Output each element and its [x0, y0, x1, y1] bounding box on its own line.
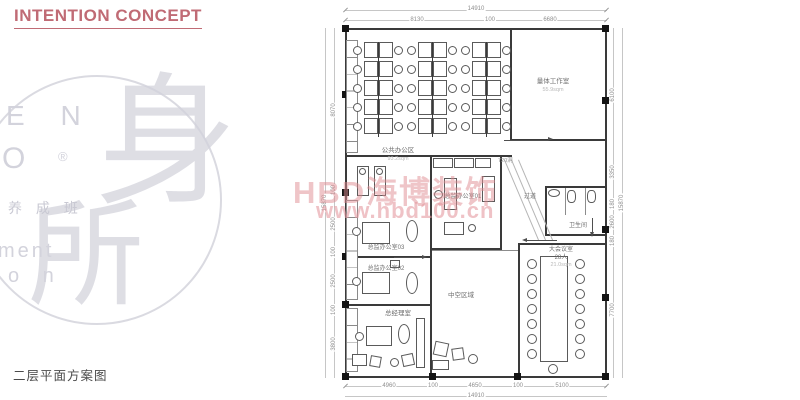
dimension-text: 100 — [427, 383, 439, 389]
chair-symbol — [527, 319, 537, 329]
chair-symbol — [448, 103, 457, 112]
opening-annotation: 720洞 — [498, 156, 513, 164]
chair-symbol — [353, 103, 362, 112]
dimension-text: 8070 — [331, 102, 337, 117]
desk-symbol — [418, 80, 432, 96]
chair-symbol — [407, 103, 416, 112]
chair-symbol — [527, 304, 537, 314]
chair-symbol — [527, 274, 537, 284]
logo-text-fragment: ment — [0, 240, 54, 263]
desk-symbol — [418, 118, 432, 134]
chair-symbol — [448, 65, 457, 74]
desk-symbol — [418, 42, 432, 58]
room-label-void: 中空区域 — [448, 292, 474, 300]
dimension-text: 14910 — [467, 6, 486, 12]
page-title: INTENTION CONCEPT — [14, 6, 202, 29]
room-area-text: 21.0sqm — [550, 262, 571, 268]
chair-symbol — [575, 289, 585, 299]
chair-symbol — [502, 122, 511, 131]
chair-symbol — [575, 259, 585, 269]
room-label-gm-office: 总经理室 — [385, 310, 411, 318]
dimension-text: 4650 — [467, 383, 482, 389]
dimension-line — [334, 28, 335, 378]
dimension-text: 100 — [331, 184, 337, 196]
desk-symbol — [472, 118, 486, 134]
chair-symbol — [394, 46, 403, 55]
room-label-corridor: 过道 — [524, 194, 536, 202]
dimension-text: 2500 — [331, 273, 337, 288]
room-label-text: 公共办公区 — [382, 147, 415, 154]
desk-symbol — [364, 118, 378, 134]
room-label-director-01: 总监办公室01 — [445, 194, 482, 202]
chair-symbol — [575, 319, 585, 329]
room-label-text: 总监办公室03 — [368, 245, 405, 251]
desk-symbol — [487, 118, 501, 134]
chair-symbol — [502, 84, 511, 93]
chair-symbol — [394, 103, 403, 112]
chair-symbol — [353, 46, 362, 55]
room-label-text: 总经理室 — [385, 310, 411, 317]
desk-symbol — [487, 80, 501, 96]
desk-symbol — [364, 80, 378, 96]
room-label-washroom: 卫生间 — [569, 223, 587, 231]
dimension-text: 4960 — [381, 383, 396, 389]
dimension-text: 100 — [512, 383, 524, 389]
logo-text-fragment: E N — [6, 100, 95, 132]
chair-symbol — [575, 334, 585, 344]
chair-symbol — [448, 84, 457, 93]
desk-symbol — [433, 80, 447, 96]
desk-symbol — [433, 99, 447, 115]
dimension-text: 2600 — [610, 214, 616, 229]
desk-symbol — [364, 42, 378, 58]
desk-symbol — [472, 99, 486, 115]
dimension-text: 15870 — [322, 194, 328, 213]
chair-symbol — [394, 84, 403, 93]
desk-symbol — [379, 80, 393, 96]
desk-symbol — [379, 42, 393, 58]
room-label-text: 过道 — [524, 194, 536, 200]
chair-symbol — [394, 122, 403, 131]
room-label-text: 量体工作室 — [537, 78, 570, 85]
desk-symbol — [472, 42, 486, 58]
chair-symbol — [575, 349, 585, 359]
desk-symbol — [364, 61, 378, 77]
dimension-text: 2500 — [331, 216, 337, 231]
dimension-text: 6100 — [610, 87, 616, 102]
desk-symbol — [418, 99, 432, 115]
chair-symbol — [461, 84, 470, 93]
dimension-text: 6680 — [542, 17, 557, 23]
chair-symbol — [527, 349, 537, 359]
chair-symbol — [461, 46, 470, 55]
chair-symbol — [407, 46, 416, 55]
chair-symbol — [575, 304, 585, 314]
room-capacity-text: 28人 — [555, 255, 568, 261]
dimension-text: 100 — [331, 304, 337, 316]
dimension-text: 180 — [610, 235, 616, 247]
chair-symbol — [448, 46, 457, 55]
chair-symbol — [353, 65, 362, 74]
room-label-text: 大会议室 — [549, 247, 573, 253]
room-label-meeting: 大会议室 28人 21.0sqm — [549, 247, 573, 270]
room-label-studio: 量体工作室 55.9sqm — [537, 78, 570, 94]
desk-symbol — [418, 61, 432, 77]
chair-symbol — [461, 103, 470, 112]
dimension-text: 7700 — [610, 302, 616, 317]
desk-symbol — [487, 42, 501, 58]
registered-mark-icon: ® — [58, 149, 68, 164]
room-area-text: 93.2sqm — [387, 156, 408, 162]
room-area-text: 55.9sqm — [542, 87, 563, 93]
chair-symbol — [407, 122, 416, 131]
chair-symbol — [502, 46, 511, 55]
dimension-text: 100 — [331, 246, 337, 258]
room-label-text: 总监办公室02 — [368, 266, 405, 272]
chair-symbol — [407, 84, 416, 93]
logo-text-fragment: o n — [8, 265, 63, 288]
dimension-text: 8130 — [409, 17, 424, 23]
room-label-open-office: 公共办公区 93.2sqm — [382, 147, 415, 163]
chair-symbol — [461, 65, 470, 74]
room-label-text: 卫生间 — [569, 223, 587, 229]
dimension-text: 3350 — [610, 164, 616, 179]
chair-symbol — [527, 334, 537, 344]
desk-symbol — [472, 80, 486, 96]
dimension-text: 3800 — [331, 336, 337, 351]
chair-symbol — [461, 122, 470, 131]
chair-symbol — [527, 289, 537, 299]
chair-symbol — [575, 274, 585, 284]
chair-symbol — [502, 103, 511, 112]
desk-symbol — [379, 99, 393, 115]
desk-symbol — [487, 61, 501, 77]
dimension-text: 5100 — [554, 383, 569, 389]
chair-symbol — [353, 84, 362, 93]
desk-symbol — [379, 118, 393, 134]
chair-symbol — [527, 259, 537, 269]
desk-symbol — [487, 99, 501, 115]
room-label-text: 中空区域 — [448, 292, 474, 299]
dimension-text: 180 — [610, 198, 616, 210]
desk-symbol — [433, 118, 447, 134]
chair-symbol — [448, 122, 457, 131]
chair-symbol — [407, 65, 416, 74]
desk-symbol — [433, 42, 447, 58]
desk-symbol — [379, 61, 393, 77]
chair-symbol — [394, 65, 403, 74]
room-label-director-02: 总监办公室02 — [368, 266, 405, 274]
room-label-director-03: 总监办公室03 — [368, 245, 405, 253]
page: INTENTION CONCEPT 身 所 E N O ® 养 成 班 ment… — [0, 0, 800, 400]
dimension-text: 14910 — [467, 393, 486, 399]
dimension-text: 15870 — [619, 194, 625, 213]
chair-symbol — [353, 122, 362, 131]
chair-symbol — [548, 364, 558, 374]
desk-symbol — [433, 61, 447, 77]
dimension-line — [345, 20, 607, 21]
dimension-text: 100 — [484, 17, 496, 23]
drawing-caption: 二层平面方案图 — [13, 365, 108, 384]
chair-symbol — [502, 65, 511, 74]
desk-symbol — [472, 61, 486, 77]
room-label-text: 总监办公室01 — [445, 194, 482, 200]
logo-text-fragment: O — [2, 142, 25, 176]
desk-symbol — [364, 99, 378, 115]
logo-text-class: 养 成 班 — [8, 198, 83, 218]
